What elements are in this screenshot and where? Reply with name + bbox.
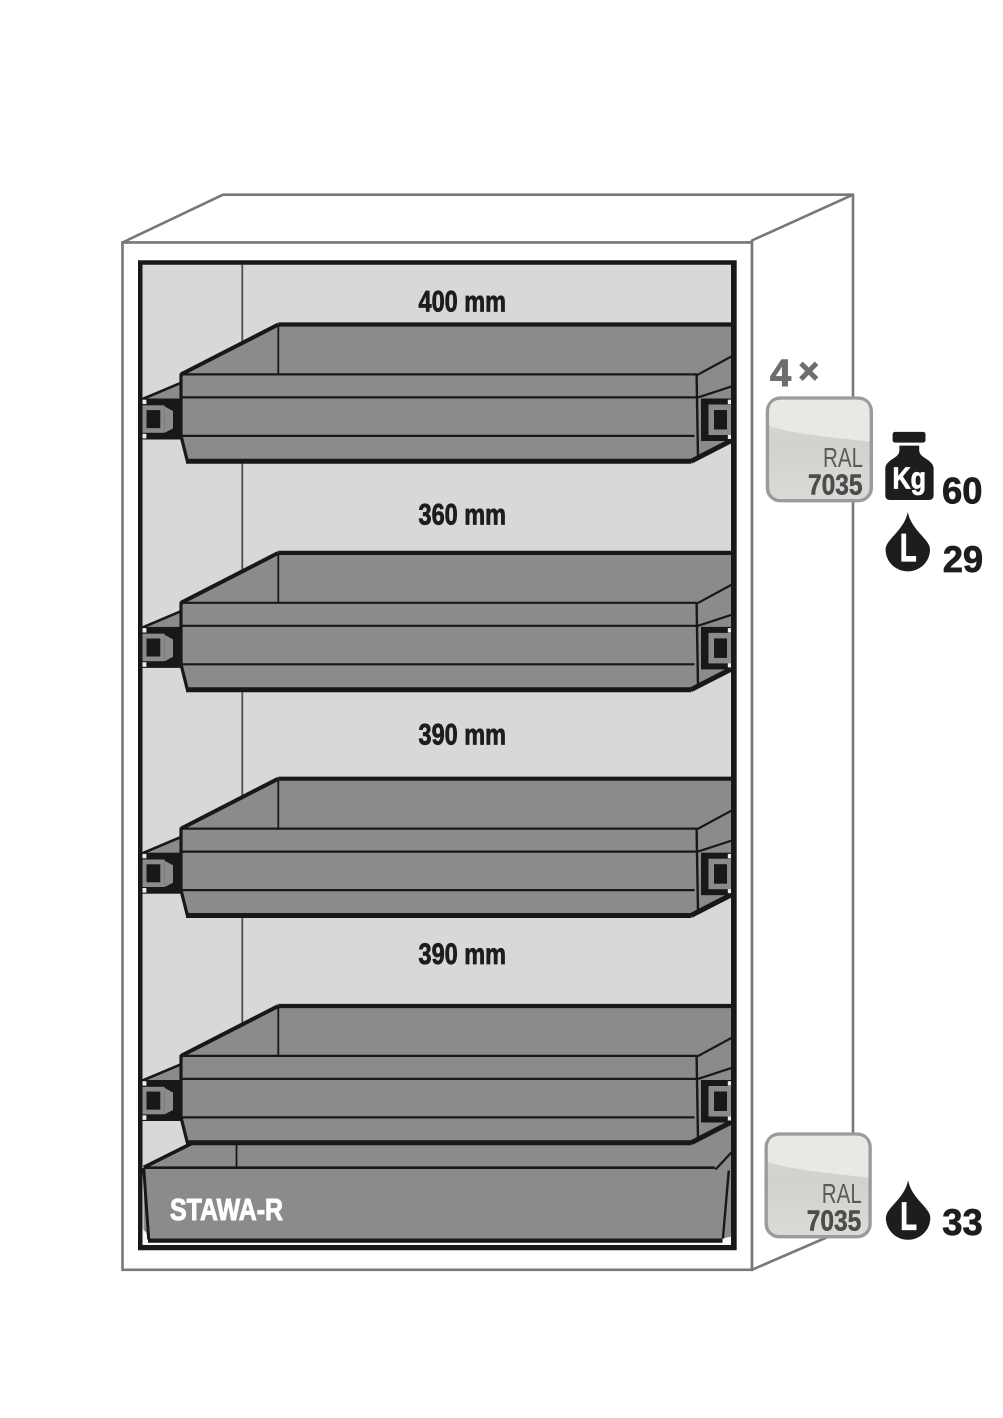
svg-text:390 mm: 390 mm	[419, 719, 507, 752]
svg-text:29: 29	[943, 538, 984, 580]
svg-text:4: 4	[770, 353, 791, 395]
svg-text:Kg: Kg	[892, 460, 926, 495]
svg-text:400 mm: 400 mm	[419, 286, 507, 319]
svg-text:60: 60	[942, 469, 983, 511]
svg-text:360 mm: 360 mm	[419, 499, 507, 532]
svg-text:390 mm: 390 mm	[419, 938, 507, 971]
svg-text:×: ×	[799, 352, 819, 391]
svg-text:33: 33	[942, 1201, 983, 1243]
svg-text:STAWA-R: STAWA-R	[170, 1193, 283, 1227]
